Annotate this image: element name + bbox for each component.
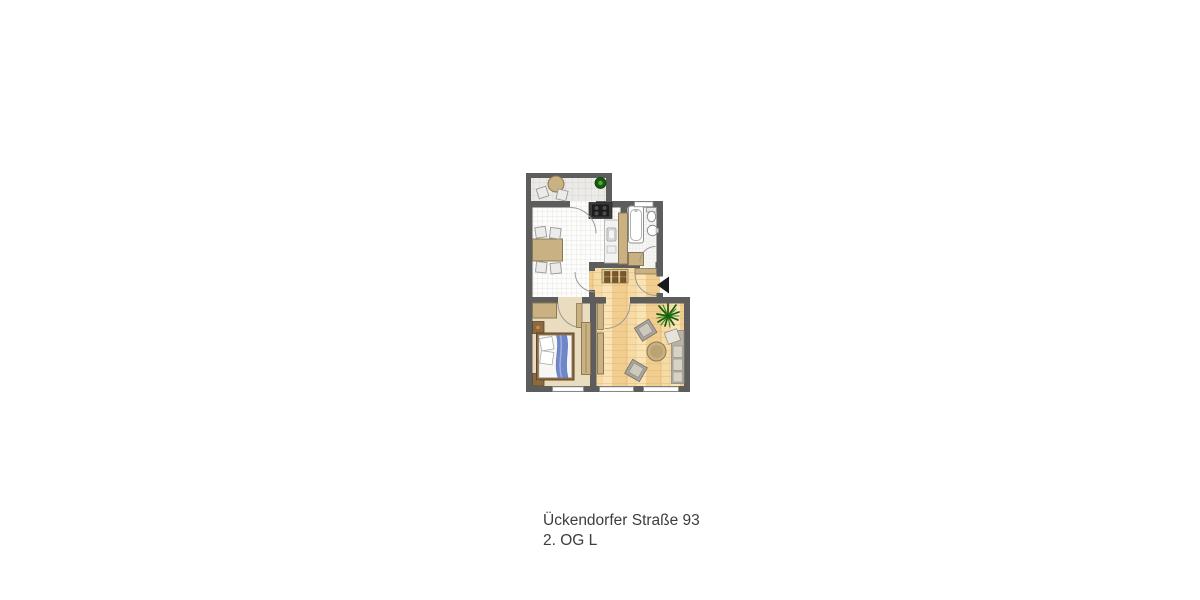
window bbox=[644, 387, 679, 392]
sink bbox=[647, 225, 658, 235]
window bbox=[553, 387, 584, 392]
floorplan-page: Ückendorfer Straße 93 2. OG L bbox=[0, 0, 1200, 600]
wall bbox=[656, 262, 664, 268]
balcony-chair bbox=[556, 189, 568, 201]
bedroom-door-threshold bbox=[558, 297, 582, 304]
potted-plant-icon bbox=[595, 178, 606, 189]
livingroom-door-leaf bbox=[598, 304, 604, 330]
bathtub bbox=[629, 206, 644, 243]
hallway-wardrobe bbox=[602, 270, 628, 284]
wall bbox=[582, 297, 596, 304]
living-cabinet bbox=[598, 333, 604, 374]
address-caption: Ückendorfer Straße 93 2. OG L bbox=[543, 511, 700, 550]
wall bbox=[526, 201, 533, 392]
coffee-table bbox=[647, 342, 666, 361]
kitchen-tall-cabinet bbox=[619, 213, 628, 264]
kitchen-counter bbox=[605, 220, 619, 263]
wall bbox=[589, 262, 595, 271]
pillow bbox=[540, 351, 554, 365]
bedroom-dresser bbox=[533, 303, 557, 318]
entrance-door-leaf bbox=[635, 269, 657, 275]
wall bbox=[526, 201, 570, 208]
kitchen-door-threshold bbox=[589, 271, 595, 290]
window bbox=[635, 202, 654, 207]
dining-chair bbox=[550, 262, 562, 274]
dining-chair bbox=[535, 261, 547, 273]
blanket bbox=[556, 336, 568, 378]
dining-chair bbox=[549, 227, 561, 239]
floor-plan bbox=[0, 0, 1200, 600]
window bbox=[600, 387, 634, 392]
wall bbox=[630, 297, 690, 304]
bedroom-wardrobe bbox=[582, 323, 591, 375]
nightstand bbox=[533, 322, 545, 334]
floor-line: 2. OG L bbox=[543, 531, 700, 551]
bathroom-cabinet bbox=[629, 253, 644, 266]
stove bbox=[589, 203, 612, 219]
toilet bbox=[647, 208, 657, 222]
livingroom-door-threshold bbox=[606, 297, 630, 304]
wall bbox=[526, 173, 612, 178]
address-line: Ückendorfer Straße 93 bbox=[543, 511, 700, 531]
double-bed bbox=[537, 333, 575, 380]
dining-chair bbox=[535, 226, 547, 238]
pillow bbox=[540, 337, 554, 351]
wall bbox=[684, 297, 690, 392]
dining-table bbox=[533, 239, 563, 261]
